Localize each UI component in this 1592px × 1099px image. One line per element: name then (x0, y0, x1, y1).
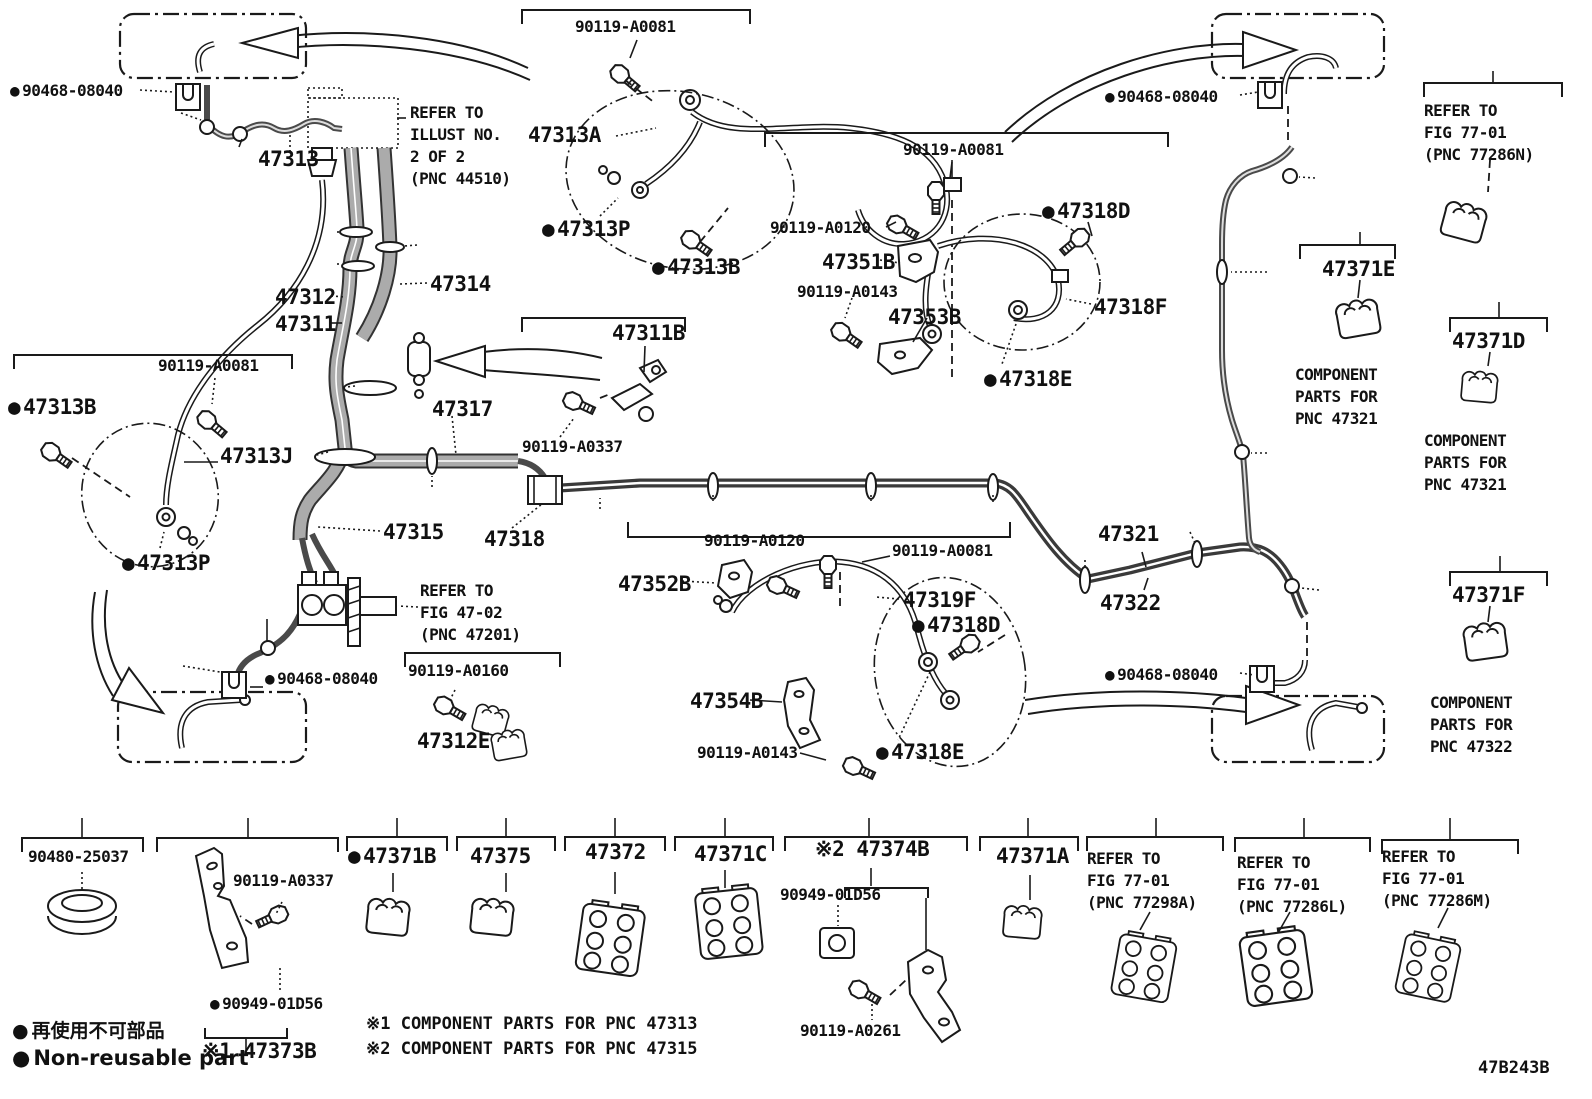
bolts (39, 62, 1092, 1008)
label-47322: 47322 (1100, 592, 1161, 614)
label-47352B: 47352B (618, 573, 691, 595)
label-47371A: 47371A (996, 845, 1069, 867)
label-comp-47321-a: COMPONENTPARTS FORPNC 47321 (1295, 364, 1377, 430)
label-47318D-b: ●47318D (912, 614, 1000, 636)
label-47318E-t: ●47318E (984, 368, 1072, 390)
label-90119-A0081-top: 90119-A0081 (575, 18, 675, 35)
label-ref-44510: REFER TOILLUST NO.2 OF 2(PNC 44510) (410, 102, 510, 190)
label-90119-A0120-c: 90119-A0120 (704, 532, 804, 549)
label-90119-A0143-t: 90119-A0143 (797, 283, 897, 300)
label-90468-08040-c: ●90468-08040 (265, 670, 378, 687)
label-47318: 47318 (484, 528, 545, 550)
union-47311B (612, 360, 666, 421)
label-90468-08040-br: ●90468-08040 (1105, 666, 1218, 683)
label-47314: 47314 (430, 273, 491, 295)
label-47312: 47312 (275, 286, 336, 308)
label-47312E: 47312E (417, 730, 490, 752)
bullet-icon: ● (12, 1046, 30, 1070)
label-90119-A0081-r: 90119-A0081 (903, 141, 1003, 158)
legend-nonreusable-jp: ●再使用不可部品 (12, 1016, 165, 1043)
label-47371C: 47371C (694, 843, 767, 865)
label-47311: 47311 (275, 313, 336, 335)
label-47313J: 47313J (220, 445, 293, 467)
label-90949-01D56-7: 90949-01D56 (780, 886, 880, 903)
label-47313P-top: ●47313P (542, 218, 630, 240)
label-47315: 47315 (383, 521, 444, 543)
legend-nonreusable-en: ●Non-reusable part (12, 1046, 249, 1070)
label-90119-A0337-b: 90119-A0337 (233, 872, 333, 889)
label-47313: 47313 (258, 148, 319, 170)
label-comp-47321-b: COMPONENTPARTS FORPNC 47321 (1424, 430, 1506, 496)
label-90119-A0081-c: 90119-A0081 (892, 542, 992, 559)
label-ref-77286N: REFER TOFIG 77-01(PNC 77286N) (1424, 100, 1534, 166)
drawing-number: 47B243B (1478, 1058, 1550, 1078)
label-90468-08040-tl: ●90468-08040 (10, 82, 123, 99)
label-47319F: 47319F (903, 589, 976, 611)
label-47321: 47321 (1098, 523, 1159, 545)
label-47317: 47317 (432, 398, 493, 420)
label-comp-47322: COMPONENTPARTS FORPNC 47322 (1430, 692, 1512, 758)
right-vertical-tube (1222, 106, 1292, 552)
footnote-2: ※2 COMPONENT PARTS FOR PNC 47315 (366, 1039, 698, 1059)
label-47371E: 47371E (1322, 258, 1395, 280)
label-ref-47201: REFER TOFIG 47-02(PNC 47201) (420, 580, 520, 646)
label-47313B-top: ●47313B (652, 256, 740, 278)
label-ref-77298A: REFER TOFIG 77-01(PNC 77298A) (1087, 848, 1197, 914)
label-47354B: 47354B (690, 690, 763, 712)
label-47318D-t: ●47318D (1042, 200, 1130, 222)
label-47372: 47372 (585, 841, 646, 863)
label-47374B: ※2 47374B (815, 838, 929, 860)
label-47371B: ●47371B (348, 845, 436, 867)
label-47371F: 47371F (1452, 584, 1525, 606)
label-47318F: 47318F (1094, 296, 1167, 318)
label-90468-08040-tr: ●90468-08040 (1105, 88, 1218, 105)
flex-connector (408, 333, 430, 398)
label-ref-77286L: REFER TOFIG 77-01(PNC 77286L) (1237, 852, 1347, 918)
label-47351B: 47351B (822, 251, 895, 273)
master-cylinder (236, 534, 396, 680)
footnote-1: ※1 COMPONENT PARTS FOR PNC 47313 (366, 1014, 698, 1034)
label-47318E-b: ●47318E (876, 741, 964, 763)
label-90949-01D56-2: ●90949-01D56 (210, 995, 323, 1012)
label-47371D: 47371D (1452, 330, 1525, 352)
label-47311B: 47311B (612, 322, 685, 344)
label-47313B-l: ●47313B (8, 396, 96, 418)
label-47353B: 47353B (888, 306, 961, 328)
label-47313A: 47313A (528, 124, 601, 146)
label-47313P-l: ●47313P (122, 552, 210, 574)
label-90119-A0143-b: 90119-A0143 (697, 744, 797, 761)
label-ref-77286M: REFER TOFIG 77-01(PNC 77286M) (1382, 846, 1492, 912)
label-90119-A0120-t: 90119-A0120 (770, 219, 870, 236)
label-47375: 47375 (470, 845, 531, 867)
parts-diagram-canvas: ●90468-0804047313REFER TOILLUST NO.2 OF … (0, 0, 1592, 1099)
label-90119-A0160: 90119-A0160 (408, 662, 508, 679)
bullet-icon: ● (12, 1020, 29, 1042)
label-90119-A0261: 90119-A0261 (800, 1022, 900, 1039)
label-90119-A0337-c: 90119-A0337 (522, 438, 622, 455)
label-90119-A0081-l: 90119-A0081 (158, 357, 258, 374)
right-hose-47318F-assembly (878, 200, 1100, 380)
label-90480-25037: 90480-25037 (28, 848, 128, 865)
